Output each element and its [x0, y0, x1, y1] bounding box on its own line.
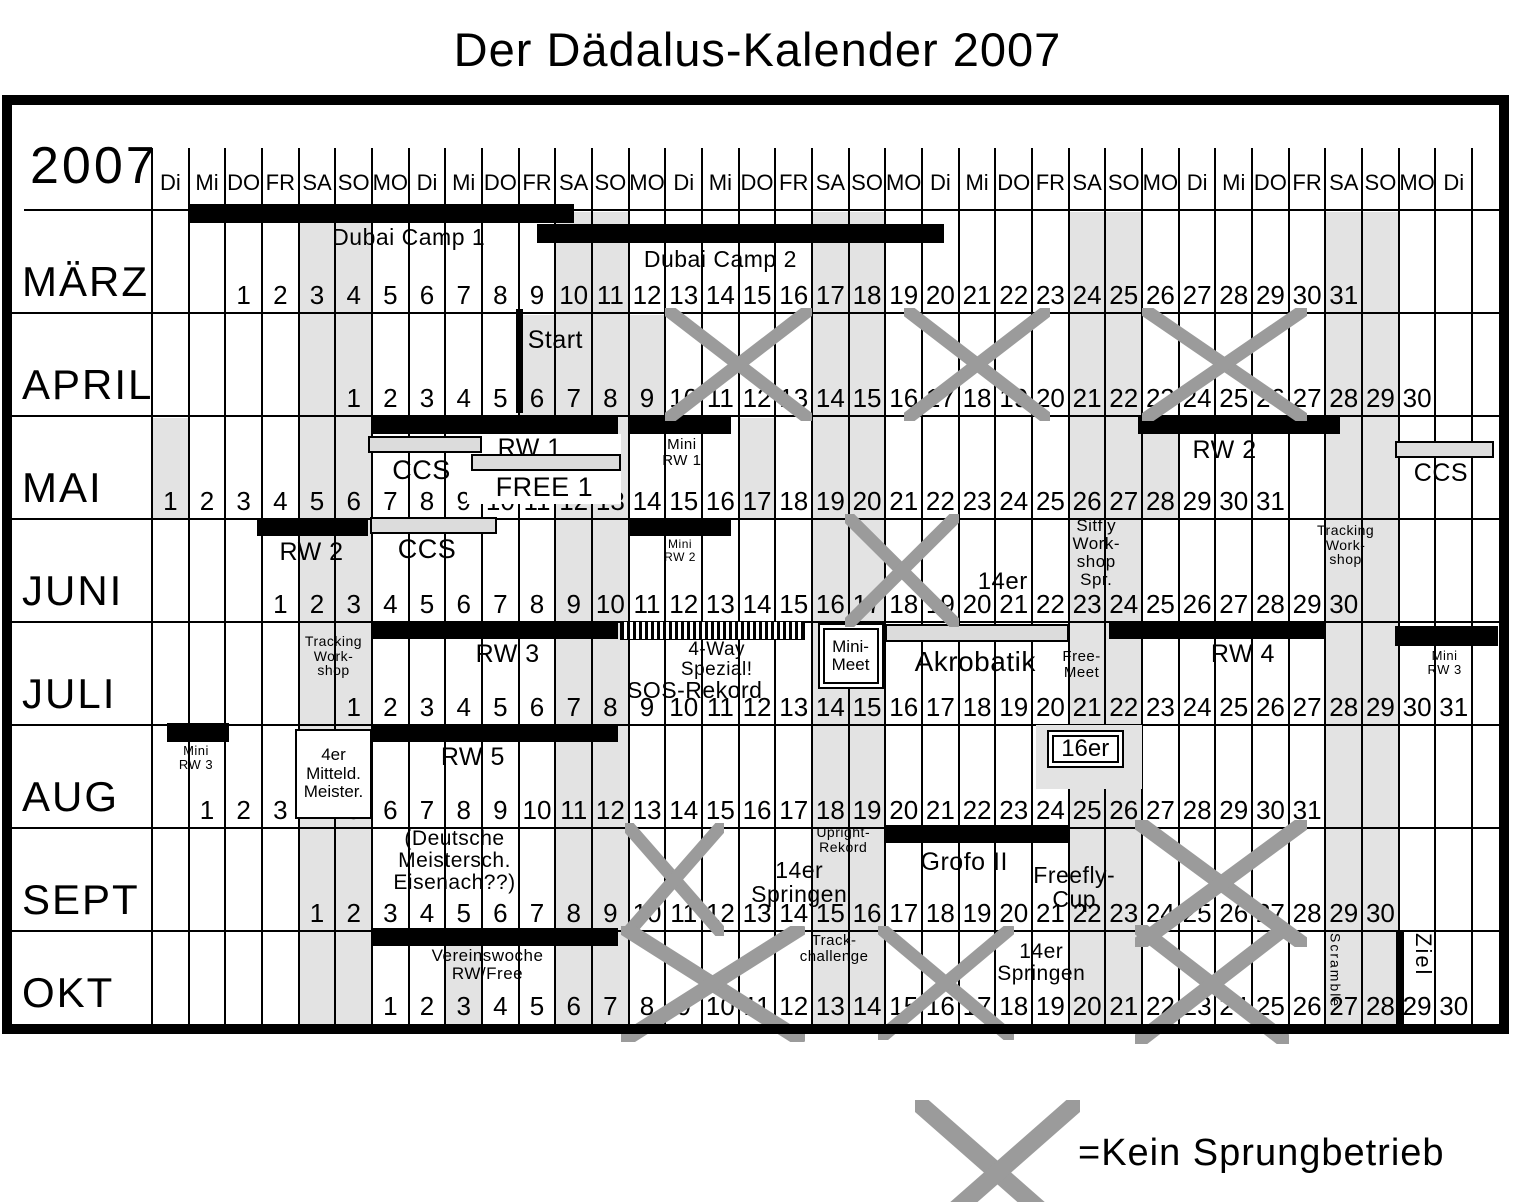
day-number: 6 [482, 898, 519, 929]
day-number: 22 [959, 795, 996, 826]
event-label-line: Mini [1432, 649, 1458, 663]
weekday-header: SO [849, 170, 886, 196]
day-number: 10 [555, 280, 592, 311]
weekday-header: Mi [959, 170, 996, 196]
day-number: 14 [739, 589, 776, 620]
day-number: 5 [482, 383, 519, 414]
event-label: MiniRW 1 [625, 437, 739, 469]
day-number: 30 [1215, 486, 1252, 517]
day-number: 28 [1325, 383, 1362, 414]
day-number: 14 [702, 280, 739, 311]
day-number: 3 [409, 383, 446, 414]
event-box: 4erMitteld.Meister. [295, 729, 372, 819]
day-number: 30 [1399, 383, 1436, 414]
day-number: 30 [1435, 991, 1472, 1022]
day-number: 19 [1032, 991, 1069, 1022]
day-number: 4 [445, 383, 482, 414]
event-label-line: Work- [1326, 538, 1366, 553]
day-number: 7 [445, 280, 482, 311]
day-number: 3 [299, 280, 336, 311]
month-label: SEPT [22, 876, 140, 924]
day-number: 5 [519, 991, 556, 1022]
no-jump-x-mark [845, 514, 959, 627]
day-number: 21 [1069, 383, 1106, 414]
event-label: RW 3 [431, 641, 585, 667]
event-label-line: Freefly- [1033, 863, 1115, 887]
event-label-line: RW 2 [664, 551, 696, 564]
no-jump-x-mark [878, 926, 1014, 1040]
event-label-line: Vereinswoche [432, 947, 544, 965]
weekday-header: FR [775, 170, 812, 196]
event-label: RW 2 [251, 539, 372, 565]
event-label-line: (Deutsche [404, 828, 504, 850]
weekday-header: FR [519, 170, 556, 196]
weekday-header: SA [555, 170, 592, 196]
grid-line-vertical [188, 148, 190, 1024]
day-number: 25 [1105, 280, 1142, 311]
grid-line-vertical [151, 148, 153, 1024]
day-number: 24 [1069, 280, 1106, 311]
month-label: MÄRZ [22, 258, 149, 306]
event-label-line: Track- [812, 933, 857, 949]
day-number: 1 [152, 486, 189, 517]
event-label-line: challenge [800, 949, 869, 965]
day-number: 3 [372, 898, 409, 929]
event-label-line: Mitteld. [306, 765, 361, 783]
day-number: 27 [1215, 589, 1252, 620]
weekday-header: DO [995, 170, 1032, 196]
event-bar [629, 518, 732, 536]
day-number: 9 [592, 898, 629, 929]
event-label: Dubai Camp 2 [555, 247, 885, 271]
vertical-label: Scramble [1327, 933, 1343, 1018]
day-number: 16 [702, 486, 739, 517]
event-label-line: shop [317, 663, 349, 678]
day-number: 29 [1325, 898, 1362, 929]
event-label: SitflyWork-shopSpr. [1043, 517, 1149, 588]
event-label-line: RW 1 [662, 453, 701, 469]
weekday-header: SA [1325, 170, 1362, 196]
table-border-left [2, 95, 12, 1034]
day-number: 5 [372, 280, 409, 311]
day-number: 20 [885, 795, 922, 826]
table-border-right [1499, 95, 1509, 1034]
day-number: 6 [335, 486, 372, 517]
weekday-header: Mi [1215, 170, 1252, 196]
day-number: 30 [1325, 589, 1362, 620]
event-label: CCS [1395, 460, 1487, 486]
weekday-header: DO [482, 170, 519, 196]
day-number: 1 [189, 795, 226, 826]
day-number: 19 [995, 692, 1032, 723]
event-label-line: Work- [314, 649, 354, 664]
weekday-header: MO [372, 170, 409, 196]
event-label: 14er [959, 569, 1047, 594]
event-label: Dubai Camp 1 [280, 225, 537, 249]
day-number: 17 [739, 486, 776, 517]
weekday-header: DO [225, 170, 262, 196]
no-jump-x-mark [1142, 308, 1307, 421]
event-label-line: RW/Free [452, 965, 523, 983]
day-number: 2 [372, 383, 409, 414]
page-title: Der Dädalus-Kalender 2007 [0, 22, 1515, 77]
day-number: 31 [1325, 280, 1362, 311]
day-number: 24 [1032, 795, 1069, 826]
day-number: 25 [1142, 589, 1179, 620]
event-label-line: shop [1077, 553, 1116, 571]
day-number: 18 [812, 795, 849, 826]
event-label-line: Free- [1062, 649, 1100, 665]
month-label: JULI [22, 670, 116, 718]
event-gray-bar [471, 454, 621, 471]
day-number: 20 [1069, 991, 1106, 1022]
event-label-line: Sitfly [1076, 517, 1116, 535]
day-number: 12 [665, 589, 702, 620]
event-label-line: RW 2 [279, 539, 343, 565]
weekday-header: SO [335, 170, 372, 196]
table-border-top [2, 95, 1509, 105]
day-number: 25 [1032, 486, 1069, 517]
event-label-line: Upright- [816, 825, 870, 840]
day-number: 3 [335, 589, 372, 620]
weekday-header: MO [885, 170, 922, 196]
day-number: 9 [629, 383, 666, 414]
row-separator-line [10, 518, 1499, 520]
event-label: RW 2 [1153, 437, 1296, 463]
no-jump-x-mark [665, 308, 812, 421]
day-number: 13 [665, 280, 702, 311]
day-number: 8 [482, 280, 519, 311]
event-bar [1109, 621, 1325, 639]
day-number: 23 [959, 486, 996, 517]
event-gray-bar [370, 517, 497, 534]
event-label: 4-WaySpezial! [621, 640, 812, 680]
day-number: 1 [372, 991, 409, 1022]
month-label: APRIL [22, 361, 153, 409]
day-number: 4 [262, 486, 299, 517]
event-label-line: RW 4 [1211, 641, 1275, 667]
event-label-line: Mini [668, 538, 692, 551]
event-label-line: Mini [667, 437, 697, 453]
day-number: 8 [445, 795, 482, 826]
day-number: 6 [519, 383, 556, 414]
event-label-line: 14er [1019, 941, 1063, 963]
day-number: 5 [409, 589, 446, 620]
day-number: 17 [922, 692, 959, 723]
day-number: 23 [1032, 280, 1069, 311]
day-number: 6 [555, 991, 592, 1022]
event-bar [372, 928, 618, 946]
weekday-header: Di [409, 170, 446, 196]
event-label-line: Start [528, 327, 583, 353]
day-number: 31 [1252, 486, 1289, 517]
month-label: AUG [22, 773, 119, 821]
event-label-line: CCS [398, 535, 457, 563]
day-number: 21 [1069, 692, 1106, 723]
day-number: 7 [519, 898, 556, 929]
day-number: 8 [592, 383, 629, 414]
day-number: 4 [335, 280, 372, 311]
event-label-line: Grofo II [921, 849, 1008, 875]
year-label: 2007 [30, 136, 158, 196]
event-bar [167, 723, 229, 742]
day-number: 4 [372, 589, 409, 620]
event-label-line: 14er [978, 569, 1028, 594]
day-number: 7 [372, 486, 409, 517]
day-number: 5 [299, 486, 336, 517]
day-number: 8 [409, 486, 446, 517]
day-number: 18 [922, 898, 959, 929]
weekday-header: Mi [702, 170, 739, 196]
day-number: 7 [555, 383, 592, 414]
event-label: MiniRW 3 [159, 744, 232, 771]
day-number: 20 [1032, 692, 1069, 723]
day-number: 29 [1289, 589, 1326, 620]
day-number: 5 [445, 898, 482, 929]
event-label-line: Work- [1072, 535, 1120, 553]
weekday-header: MO [629, 170, 666, 196]
event-label-line: Meet [832, 656, 870, 674]
event-label-line: Tracking [305, 634, 362, 649]
event-label: RW 5 [409, 744, 537, 770]
weekday-header: FR [1032, 170, 1069, 196]
day-number: 21 [959, 280, 996, 311]
day-number: 8 [519, 589, 556, 620]
event-label-line: FREE 1 [496, 473, 594, 501]
event-label-line: Meet [1064, 665, 1099, 681]
day-number: 22 [922, 486, 959, 517]
event-label-line: Dubai Camp 1 [332, 225, 485, 249]
day-number: 28 [1362, 991, 1399, 1022]
start-line [516, 309, 523, 413]
event-label-line: Spr. [1080, 571, 1112, 589]
event-label-line: Springen [751, 882, 847, 906]
calendar-page: Der Dädalus-Kalender 2007 MÄRZ1234567891… [0, 0, 1515, 1202]
event-label-line: 4er [321, 746, 346, 764]
event-box: 16er [1047, 730, 1124, 768]
day-number: 15 [739, 280, 776, 311]
day-number: 27 [1289, 692, 1326, 723]
day-number: 3 [262, 795, 299, 826]
day-number: 15 [665, 486, 702, 517]
day-number: 4 [409, 898, 446, 929]
day-number: 29 [1362, 692, 1399, 723]
legend-label: =Kein Sprungbetrieb [1078, 1132, 1445, 1175]
event-label: VereinswocheRW/Free [383, 947, 592, 983]
day-number: 17 [812, 280, 849, 311]
day-number: 7 [409, 795, 446, 826]
day-number: 7 [482, 589, 519, 620]
event-bar [537, 224, 944, 243]
event-label: CCS [365, 535, 490, 563]
day-number: 11 [555, 795, 592, 826]
event-bar [372, 724, 618, 742]
day-number: 19 [885, 280, 922, 311]
day-number: 26 [1289, 991, 1326, 1022]
day-number: 22 [995, 280, 1032, 311]
weekday-header: Di [1179, 170, 1216, 196]
event-label: Free-Meet [1054, 649, 1109, 681]
day-number: 24 [1179, 692, 1216, 723]
day-number: 18 [959, 692, 996, 723]
event-gray-bar [368, 436, 482, 453]
day-number: 14 [812, 383, 849, 414]
event-label: MiniRW 3 [1399, 649, 1491, 676]
event-label: (DeutscheMeistersch.Eisenach??) [346, 828, 562, 894]
day-number: 17 [775, 795, 812, 826]
table-border-bottom [2, 1024, 1509, 1034]
weekday-header: MO [1142, 170, 1179, 196]
day-number: 6 [409, 280, 446, 311]
day-number: 1 [335, 383, 372, 414]
event-label: Upright-Rekord [801, 825, 885, 854]
day-number: 26 [1252, 692, 1289, 723]
day-number: 26 [1069, 486, 1106, 517]
day-number: 23 [995, 795, 1032, 826]
day-number: 19 [812, 486, 849, 517]
day-number: 3 [225, 486, 262, 517]
event-label-line: Meistersch. [398, 850, 511, 872]
day-number: 10 [592, 589, 629, 620]
event-label-line: Cup [1052, 887, 1096, 911]
day-number: 2 [225, 795, 262, 826]
day-number: 28 [1215, 280, 1252, 311]
day-number: 13 [702, 589, 739, 620]
weekday-header: Mi [189, 170, 226, 196]
day-number: 4 [482, 991, 519, 1022]
day-number: 29 [1252, 280, 1289, 311]
day-number: 13 [629, 795, 666, 826]
day-number: 21 [922, 795, 959, 826]
day-number: 12 [629, 280, 666, 311]
event-label-line: Tracking [1317, 523, 1374, 538]
day-number: 15 [775, 589, 812, 620]
event-label: SOS-Rekord [570, 678, 819, 702]
day-number: 9 [555, 589, 592, 620]
grid-line-vertical [1434, 148, 1436, 1024]
day-number: 6 [372, 795, 409, 826]
day-number: 24 [1105, 589, 1142, 620]
event-label-line: CCS [392, 456, 451, 484]
weekday-header: SO [1362, 170, 1399, 196]
event-label-line: shop [1329, 552, 1361, 567]
month-label: OKT [22, 969, 114, 1017]
day-number: 27 [1105, 486, 1142, 517]
day-number: 27 [1179, 280, 1216, 311]
event-gray-bar [1395, 441, 1494, 458]
day-number: 16 [812, 589, 849, 620]
day-number: 20 [922, 280, 959, 311]
day-number: 23 [1069, 589, 1106, 620]
weekday-header: SO [592, 170, 629, 196]
event-label-line: RW 5 [441, 744, 505, 770]
day-number: 31 [1435, 692, 1472, 723]
weekday-header: SA [299, 170, 336, 196]
weekday-header: SA [1069, 170, 1106, 196]
day-number: 30 [1362, 898, 1399, 929]
event-label: 14erSpringen [713, 858, 885, 906]
day-number: 21 [885, 486, 922, 517]
event-label-line: Meister. [304, 783, 364, 801]
day-number: 11 [592, 280, 629, 311]
day-number: 5 [482, 692, 519, 723]
day-number: 16 [739, 795, 776, 826]
weekday-header: MO [1399, 170, 1436, 196]
day-number: 16 [885, 692, 922, 723]
grid-line-vertical [1398, 148, 1400, 1024]
event-bar [372, 416, 618, 434]
event-label-line: RW 3 [476, 641, 540, 667]
no-jump-x-mark [625, 823, 724, 936]
day-number: 30 [1289, 280, 1326, 311]
day-number: 18 [775, 486, 812, 517]
day-number: 1 [262, 589, 299, 620]
day-number: 11 [629, 589, 666, 620]
day-number: 13 [812, 991, 849, 1022]
day-number: 24 [995, 486, 1032, 517]
day-number: 15 [702, 795, 739, 826]
event-label: Freefly-Cup [1006, 863, 1142, 911]
day-number: 28 [1142, 486, 1179, 517]
day-number: 30 [1399, 692, 1436, 723]
day-number: 1 [335, 692, 372, 723]
weekday-header: Di [922, 170, 959, 196]
day-number: 3 [409, 692, 446, 723]
no-jump-x-mark [904, 308, 1051, 421]
event-label-line: Eisenach??) [393, 872, 515, 894]
event-label: TrackingWork-shop [1300, 523, 1392, 567]
weekday-header: DO [1252, 170, 1289, 196]
event-bar [372, 621, 618, 639]
weekday-header: Di [152, 170, 189, 196]
day-number: 2 [189, 486, 226, 517]
event-label: MiniRW 2 [621, 538, 738, 563]
weekday-header: DO [739, 170, 776, 196]
day-number: 17 [885, 898, 922, 929]
day-number: 29 [1179, 486, 1216, 517]
event-label-line: Akrobatik [915, 647, 1036, 676]
day-number: 4 [445, 692, 482, 723]
day-number: 19 [849, 795, 886, 826]
month-label: JUNI [22, 567, 123, 615]
event-hatched-bar [620, 621, 805, 640]
day-number: 28 [1325, 692, 1362, 723]
event-label: FREE 1 [460, 473, 629, 501]
weekday-header: SA [812, 170, 849, 196]
day-number: 26 [1142, 280, 1179, 311]
event-bar [885, 825, 1068, 843]
day-number: 2 [299, 589, 336, 620]
event-label: Start [511, 327, 599, 353]
event-label: TrackingWork-shop [295, 634, 372, 678]
day-number: 22 [1105, 692, 1142, 723]
legend-x-icon [915, 1100, 1080, 1202]
calendar-grid: MÄRZ123456789101112131415161718192021222… [0, 0, 1515, 1202]
weekday-header: Di [665, 170, 702, 196]
vertical-label: Ziel [1410, 933, 1436, 1018]
day-number: 1 [299, 898, 336, 929]
day-number: 10 [519, 795, 556, 826]
event-bar [257, 518, 369, 536]
event-label-line: Dubai Camp 2 [644, 247, 797, 271]
weekday-header: FR [262, 170, 299, 196]
event-label-line: RW 3 [179, 758, 213, 772]
day-number: 22 [1105, 383, 1142, 414]
day-number: 16 [775, 280, 812, 311]
day-number: 6 [519, 692, 556, 723]
day-number: 18 [849, 280, 886, 311]
event-label: Akrobatik [874, 647, 1076, 676]
